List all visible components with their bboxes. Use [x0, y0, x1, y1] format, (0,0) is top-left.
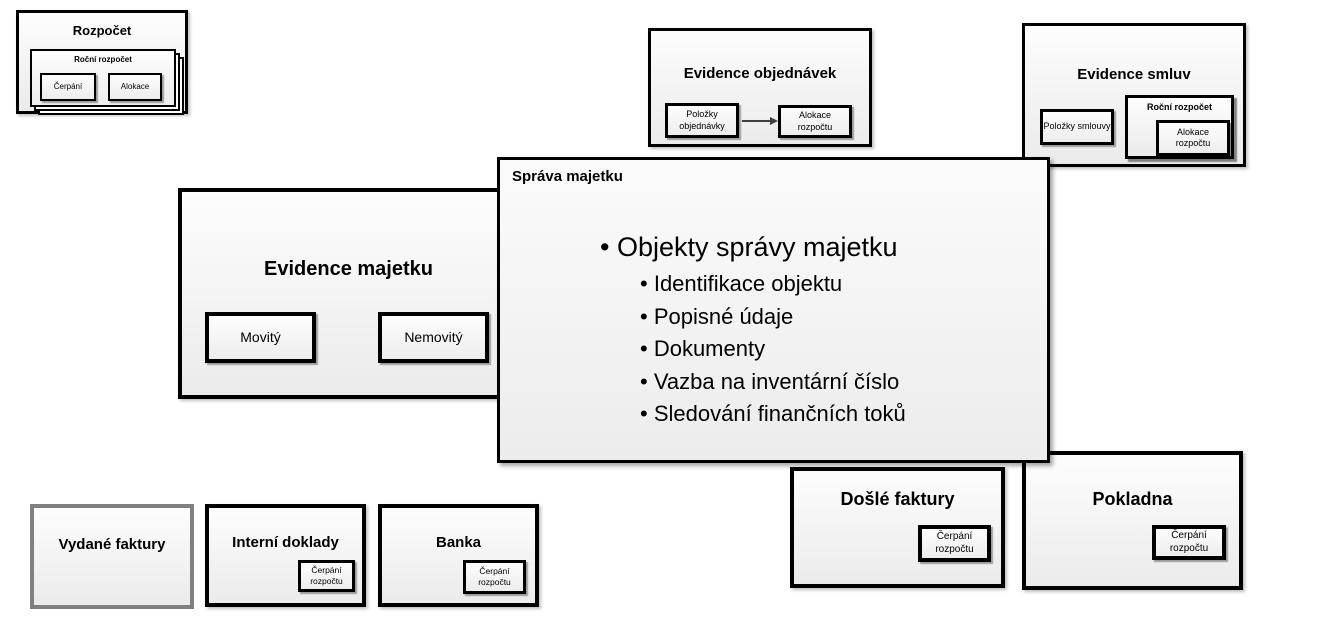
box-cerpani-rozpoctu-pokladna-label: Čerpání rozpočtu [1156, 530, 1222, 555]
box-alokace: Alokace [108, 73, 162, 101]
box-cerpani: Čerpání [40, 73, 96, 101]
box-rozpocet: Rozpočet Roční rozpočet Čerpání Alokace [16, 10, 188, 114]
box-dosle-faktury: Došlé faktury Čerpání rozpočtu [790, 467, 1005, 588]
box-banka-title: Banka [382, 534, 535, 551]
flow-arrow-icon [742, 117, 778, 125]
box-vydane-faktury: Vydané faktury [30, 504, 194, 609]
sub-bullet-list: Identifikace objektu Popisné údaje Dokum… [640, 268, 906, 431]
panel-sprava-majetku: Správa majetku Objekty správy majetku Id… [497, 157, 1050, 463]
box-cerpani-rozpoctu-banka: Čerpání rozpočtu [463, 560, 526, 594]
box-evidence-majetku: Evidence majetku Movitý Nemovitý [178, 188, 519, 399]
box-cerpani-rozpoctu-dosle-label: Čerpání rozpočtu [922, 531, 987, 556]
diagram-canvas: Rozpočet Roční rozpočet Čerpání Alokace … [0, 0, 1324, 618]
box-alokace-rozpoctu-objednavky-label: Alokace rozpočtu [781, 110, 849, 133]
box-interni-doklady-title: Interní doklady [209, 534, 362, 551]
box-evidence-majetku-title: Evidence majetku [182, 258, 515, 281]
box-rocni-rozpocet-smluv: Roční rozpočet Alokace rozpočtu [1125, 95, 1234, 159]
box-alokace-label: Alokace [121, 82, 149, 92]
box-polozky-objednavky-label: Položky objednávky [668, 109, 736, 132]
sub-bullet: Popisné údaje [640, 301, 906, 334]
box-evidence-smluv: Evidence smluv Položky smlouvy Roční roz… [1022, 23, 1246, 167]
box-cerpani-rozpoctu-banka-label: Čerpání rozpočtu [466, 566, 523, 587]
box-alokace-rozpoctu-smluv-label: Alokace rozpočtu [1159, 127, 1227, 150]
box-alokace-rozpoctu-smluv: Alokace rozpočtu [1156, 120, 1230, 156]
box-pokladna-title: Pokladna [1026, 489, 1239, 510]
bullet-main: Objekty správy majetku [600, 228, 906, 266]
box-movity-label: Movitý [240, 329, 280, 347]
box-rocni-rozpocet-title: Roční rozpočet [32, 55, 174, 64]
box-interni-doklady: Interní doklady Čerpání rozpočtu [205, 504, 366, 607]
box-movity: Movitý [205, 312, 316, 363]
box-vydane-faktury-title: Vydané faktury [34, 536, 190, 553]
box-nemovity: Nemovitý [378, 312, 489, 363]
box-nemovity-label: Nemovitý [404, 329, 462, 347]
box-evidence-smluv-title: Evidence smluv [1025, 66, 1243, 83]
box-rozpocet-title: Rozpočet [19, 23, 185, 38]
box-alokace-rozpoctu-objednavky: Alokace rozpočtu [778, 105, 852, 138]
box-rocni-rozpocet-stack: Roční rozpočet Čerpání Alokace [30, 49, 176, 107]
sub-bullet: Dokumenty [640, 333, 906, 366]
box-evidence-objednavek: Evidence objednávek Položky objednávky A… [648, 28, 872, 147]
box-rocni-rozpocet-smluv-title: Roční rozpočet [1128, 102, 1231, 112]
sub-bullet: Identifikace objektu [640, 268, 906, 301]
box-cerpani-rozpoctu-interni: Čerpání rozpočtu [298, 560, 355, 592]
box-dosle-faktury-title: Došlé faktury [794, 489, 1001, 510]
box-cerpani-rozpoctu-dosle: Čerpání rozpočtu [918, 525, 991, 562]
box-evidence-objednavek-title: Evidence objednávek [651, 65, 869, 82]
box-pokladna: Pokladna Čerpání rozpočtu [1022, 451, 1243, 590]
box-polozky-objednavky: Položky objednávky [665, 103, 739, 138]
box-cerpani-rozpoctu-interni-label: Čerpání rozpočtu [301, 565, 352, 586]
box-rocni-rozpocet: Roční rozpočet Čerpání Alokace [30, 49, 176, 107]
box-polozky-smlouvy-label: Položky smlouvy [1043, 121, 1110, 132]
box-banka: Banka Čerpání rozpočtu [378, 504, 539, 607]
panel-sprava-majetku-title: Správa majetku [512, 168, 623, 185]
sprava-majetku-bullet-list: Objekty správy majetku Identifikace obje… [600, 228, 906, 431]
sub-bullet: Vazba na inventární číslo [640, 366, 906, 399]
box-cerpani-label: Čerpání [54, 82, 82, 92]
box-cerpani-rozpoctu-pokladna: Čerpání rozpočtu [1152, 525, 1226, 560]
sub-bullet: Sledování finančních toků [640, 398, 906, 431]
box-polozky-smlouvy: Položky smlouvy [1040, 109, 1114, 145]
